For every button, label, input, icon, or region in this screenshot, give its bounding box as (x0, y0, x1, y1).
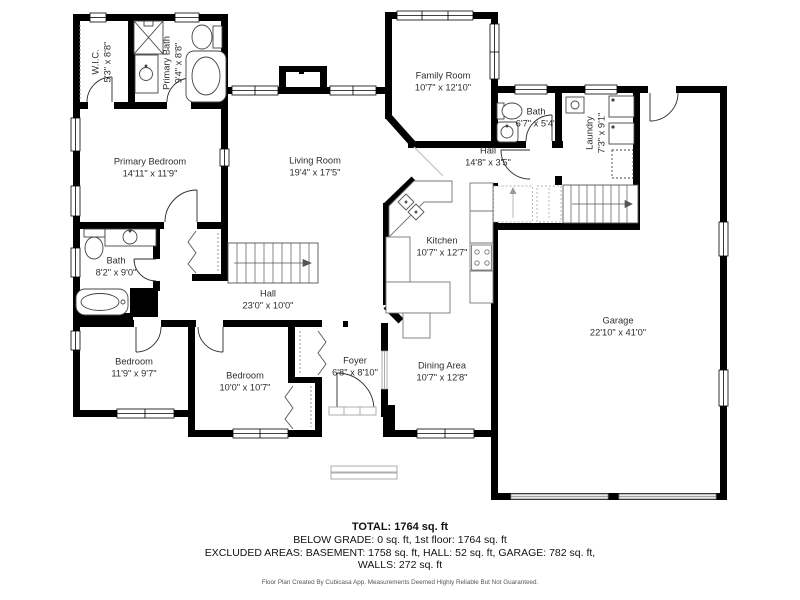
door-garage-back (650, 93, 678, 121)
walls-area-text: WALLS: 272 sq. ft (0, 559, 800, 572)
room-label-bedroom-1: Bedroom11'9" x 9'7" (111, 357, 156, 380)
room-label-foyer: Foyer6'8" x 8'10" (332, 356, 378, 379)
room-label-family-room: Family Room10'7" x 12'10" (415, 71, 471, 94)
vanity-sink-icon (135, 55, 158, 93)
door-bedroom-2 (198, 327, 223, 352)
cooktop-icon (472, 245, 492, 270)
door-bedroom-1 (136, 327, 161, 352)
room-label-primary-bath: Primary Bath9'4" x 8'8" (162, 36, 185, 90)
room-label-bedroom-2: Bedroom10'0" x 10'7" (220, 371, 271, 394)
door-front-entry (337, 373, 374, 410)
floor-plan-page: W.I.C.5'3" x 8'8" Primary Bath9'4" x 8'8… (0, 0, 800, 600)
room-label-laundry: Laundry7'3" x 9'1" (585, 113, 608, 154)
room-label-hall-upper: Hall14'8" x 3'5" (465, 146, 511, 169)
disclaimer-text: Floor Plan Created By Cubicasa App. Meas… (0, 579, 800, 586)
room-label-wic: W.I.C.5'3" x 8'8" (91, 42, 114, 83)
staircase-main (228, 243, 318, 283)
room-label-living-room: Living Room19'4" x 17'5" (289, 156, 341, 179)
shower-icon (134, 21, 163, 54)
laundry-sink-icon (566, 97, 584, 113)
vanity-sink-icon-hall-bath (105, 229, 156, 246)
below-grade-text: BELOW GRADE: 0 sq. ft, 1st floor: 1764 s… (0, 534, 800, 547)
excluded-areas-text: EXCLUDED AREAS: BASEMENT: 1758 sq. ft, H… (0, 547, 800, 560)
staircase-basement (494, 185, 639, 223)
room-label-hall-main: Hall23'0" x 10'0" (243, 289, 294, 312)
room-label-primary-bedroom: Primary Bedroom14'11" x 11'9" (114, 157, 186, 180)
room-label-bath-small: Bath6'7" x 5'4" (516, 107, 557, 130)
bathtub-icon-hall-bath (76, 289, 128, 315)
washer-dryer-icons (609, 96, 634, 178)
room-label-dining-area: Dining Area10'7" x 12'8" (417, 361, 468, 384)
room-label-garage: Garage22'10" x 41'0" (590, 316, 646, 339)
door-primary-bedroom (165, 190, 197, 222)
area-summary: TOTAL: 1764 sq. ft BELOW GRADE: 0 sq. ft… (0, 521, 800, 586)
toilet-icon-hall-bath (84, 229, 105, 259)
room-label-hall-bath: Bath8'2" x 9'0" (96, 256, 137, 279)
door-bath-hall (134, 259, 156, 281)
room-label-kitchen: Kitchen10'7" x 12'7" (417, 236, 468, 259)
bathtub-icon-primary (186, 51, 226, 102)
total-area-text: TOTAL: 1764 sq. ft (0, 521, 800, 534)
toilet-icon-primary (192, 25, 222, 49)
